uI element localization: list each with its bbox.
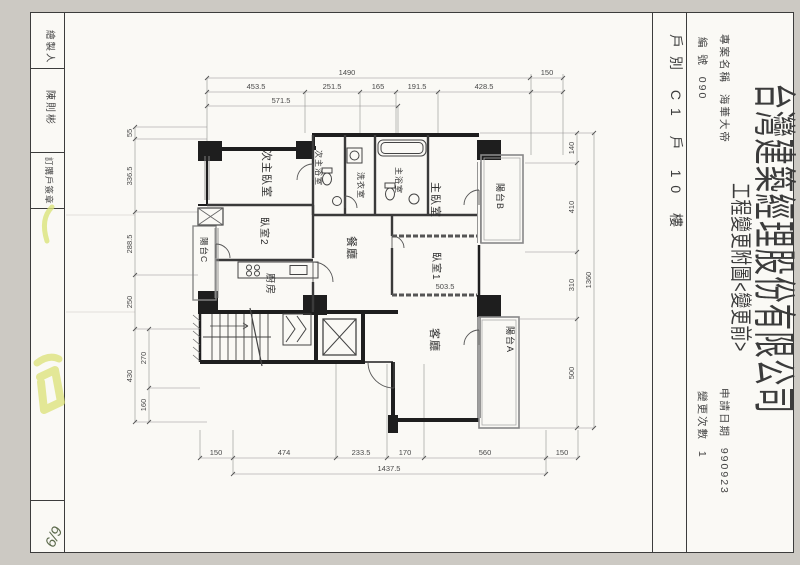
apply-date-value: 990923 (718, 448, 730, 495)
kitchen-sink (290, 266, 307, 275)
dim-label: 571.5 (272, 96, 291, 105)
room-label: 主臥室 (429, 182, 443, 218)
unit-floor-label: 戶別 C1 戶 10 樓 (669, 34, 683, 235)
dimension-labels: 1490 150 453.5 251.5 165 191.5 428.5 571… (125, 68, 593, 473)
dim-label: 453.5 (247, 82, 266, 91)
room-label: 客廳 (428, 328, 442, 352)
room-label: 主浴室 (394, 167, 404, 194)
room-label: 陽台A (505, 326, 516, 353)
revision-count-label: 變更次數 (696, 391, 708, 441)
drafter-label: 繪製人 (45, 30, 55, 65)
dim-label: 165 (372, 82, 385, 91)
dim-label: 191.5 (408, 82, 427, 91)
revision-count: 變更次數 1 (697, 391, 708, 459)
dim-label: 310 (567, 279, 576, 292)
dim-label: 160 (139, 399, 148, 412)
dim-label: 233.5 (352, 448, 371, 457)
dim-label: 251.5 (323, 82, 342, 91)
entry-closet (283, 314, 311, 345)
dim-label: 150 (210, 448, 223, 457)
project-number: 編 號 090 (697, 37, 708, 100)
sink (409, 194, 419, 204)
washer (347, 148, 362, 163)
room-label: 臥室1 (430, 252, 443, 281)
sink (333, 197, 342, 206)
dim-label: 428.5 (475, 82, 494, 91)
room-label: 陽台C (199, 237, 209, 263)
project-name-value: 海華大帝 (718, 94, 730, 144)
project-name: 專案名稱 海華大帝 (719, 34, 730, 144)
left-block-row-line (30, 500, 64, 501)
room-labels: 次主臥室 次主浴室 洗衣室 主浴室 主臥室 陽台B 臥室2 陽台C 廚房 餐廳 … (199, 150, 516, 353)
dim-label: 503.5 (436, 282, 455, 291)
dim-label: 430 (125, 370, 134, 383)
room-label: 餐廳 (345, 236, 359, 260)
elevator (316, 312, 363, 362)
dim-label: 410 (567, 201, 576, 214)
right-block-divider-1 (652, 12, 653, 553)
structural-columns (198, 140, 501, 433)
room-label: 洗衣室 (356, 172, 366, 199)
dim-label: 288.5 (125, 235, 134, 254)
apply-date-label: 申請日期 (718, 388, 730, 438)
dim-label: 150 (541, 68, 554, 77)
company-title: 台灣建築經理股份有限公司 (751, 83, 795, 414)
room-label: 廚房 (264, 273, 277, 295)
dim-label: 55 (125, 129, 134, 137)
apply-date: 申請日期 990923 (719, 388, 730, 495)
floor-plan-drawing: 1490 150 453.5 251.5 165 191.5 428.5 571… (64, 14, 652, 552)
room-label: 次主浴室 (314, 150, 324, 186)
drawing-subtitle: 工程變更附圖<變更前> (729, 183, 751, 352)
dim-label: 250 (125, 296, 134, 309)
dim-label: 1360 (584, 272, 593, 289)
project-number-value: 090 (696, 77, 708, 101)
project-number-label: 編 號 (696, 37, 708, 67)
dim-label: 1490 (339, 68, 356, 77)
project-name-label: 專案名稱 (718, 34, 730, 84)
left-block-row-line (30, 152, 64, 153)
dim-label: 140 (567, 142, 576, 155)
drafter-name: 陳則彬 (44, 90, 54, 126)
revision-count-value: 1 (696, 451, 708, 459)
room-label: 臥室2 (258, 217, 271, 246)
dim-label: 500 (567, 367, 576, 380)
dim-label: 150 (556, 448, 569, 457)
stairs (203, 308, 271, 366)
right-block-divider-2 (686, 12, 687, 553)
scanned-floor-plan-sheet: 繪製人 陳則彬 訂購戶簽章 6/9 戶別 C1 戶 10 樓 專案名稱 海華大帝… (0, 0, 800, 565)
dim-label: 1437.5 (378, 464, 401, 473)
dim-label: 270 (139, 352, 148, 365)
dim-label: 170 (399, 448, 412, 457)
room-label: 陽台B (495, 183, 506, 210)
dim-label: 474 (278, 448, 291, 457)
left-block-row-line (30, 68, 64, 69)
room-label: 次主臥室 (260, 150, 274, 198)
toilet (386, 188, 395, 200)
dim-label: 336.5 (125, 167, 134, 186)
dim-label: 560 (479, 448, 492, 457)
